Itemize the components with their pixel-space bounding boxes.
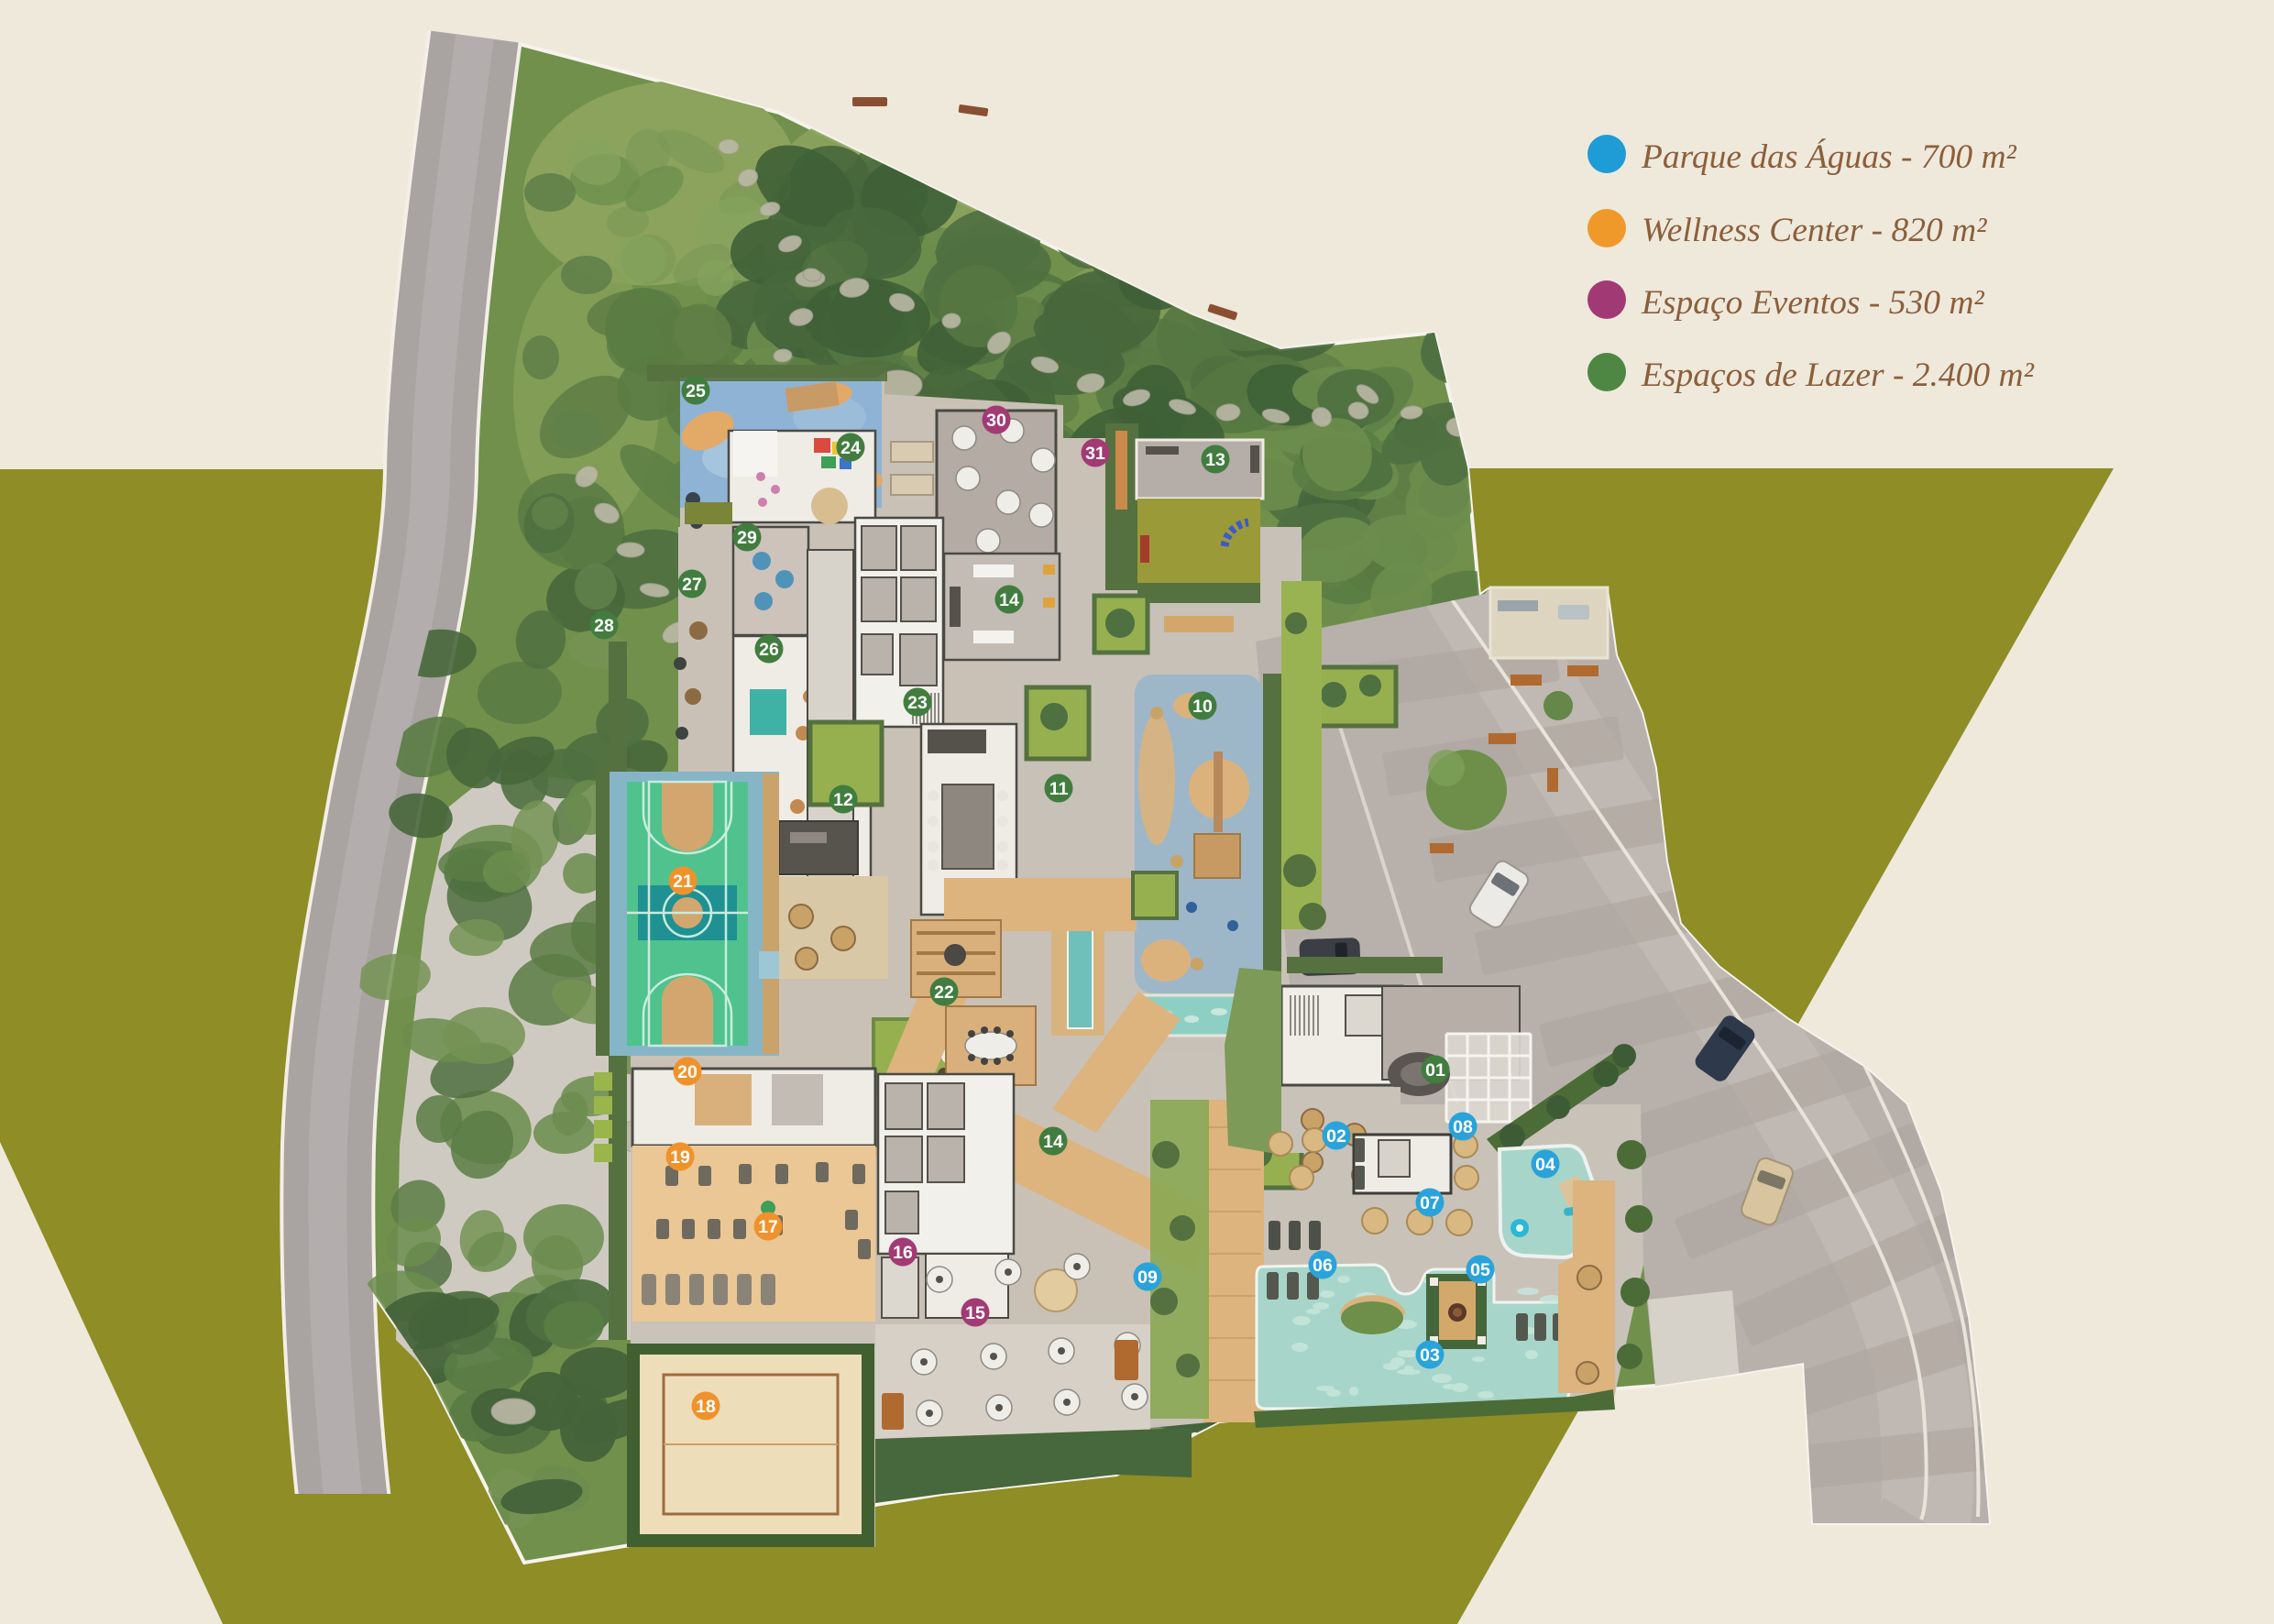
svg-text:12: 12 xyxy=(833,790,853,810)
svg-text:08: 08 xyxy=(1453,1117,1473,1137)
svg-text:30: 30 xyxy=(986,411,1006,431)
svg-text:10: 10 xyxy=(1192,697,1213,717)
svg-text:17: 17 xyxy=(758,1217,778,1237)
svg-text:05: 05 xyxy=(1470,1260,1490,1280)
svg-text:27: 27 xyxy=(682,575,702,595)
svg-text:02: 02 xyxy=(1326,1126,1346,1147)
svg-text:Espaço Eventos - 530 m²: Espaço Eventos - 530 m² xyxy=(1641,284,1984,322)
svg-text:07: 07 xyxy=(1420,1193,1440,1213)
svg-text:15: 15 xyxy=(965,1303,985,1323)
svg-text:29: 29 xyxy=(737,528,757,548)
svg-text:31: 31 xyxy=(1085,444,1105,464)
svg-text:24: 24 xyxy=(840,438,861,458)
svg-text:14: 14 xyxy=(999,590,1019,610)
svg-text:03: 03 xyxy=(1420,1345,1440,1366)
svg-text:09: 09 xyxy=(1137,1267,1158,1288)
svg-text:28: 28 xyxy=(594,616,614,636)
svg-text:14: 14 xyxy=(1043,1132,1063,1152)
svg-text:22: 22 xyxy=(934,982,954,1003)
svg-text:04: 04 xyxy=(1535,1155,1555,1175)
svg-text:26: 26 xyxy=(759,640,779,660)
svg-text:25: 25 xyxy=(686,381,706,401)
svg-text:01: 01 xyxy=(1425,1060,1445,1081)
svg-text:Espaços de Lazer - 2.400 m²: Espaços de Lazer - 2.400 m² xyxy=(1641,357,2035,394)
svg-text:13: 13 xyxy=(1205,450,1225,470)
svg-text:Parque das Águas - 700 m²: Parque das Águas - 700 m² xyxy=(1641,137,2017,176)
svg-text:16: 16 xyxy=(893,1243,913,1263)
svg-text:21: 21 xyxy=(673,872,693,892)
svg-text:Wellness Center - 820 m²: Wellness Center - 820 m² xyxy=(1642,212,1987,249)
svg-text:11: 11 xyxy=(1049,779,1069,799)
svg-text:23: 23 xyxy=(907,693,928,713)
svg-text:20: 20 xyxy=(677,1062,698,1082)
svg-text:19: 19 xyxy=(670,1147,690,1168)
svg-text:06: 06 xyxy=(1313,1256,1333,1276)
svg-text:18: 18 xyxy=(696,1397,716,1417)
